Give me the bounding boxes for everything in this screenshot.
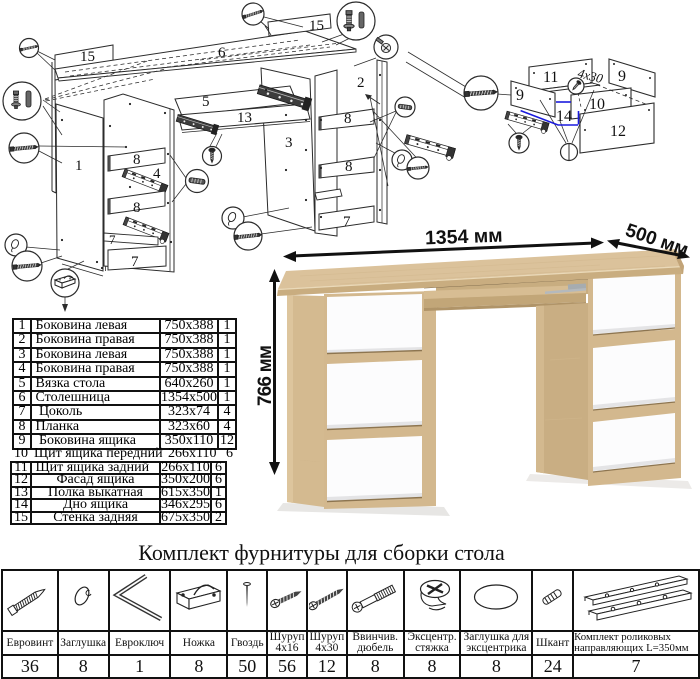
svg-text:7: 7 — [343, 214, 351, 230]
svg-text:5: 5 — [202, 94, 210, 110]
svg-text:4: 4 — [153, 166, 161, 182]
svg-text:15: 15 — [309, 18, 324, 34]
svg-text:2: 2 — [357, 75, 365, 91]
svg-text:7: 7 — [131, 254, 139, 270]
svg-text:8: 8 — [133, 152, 141, 168]
svg-text:13: 13 — [237, 110, 252, 126]
svg-text:7: 7 — [109, 232, 116, 247]
svg-text:3: 3 — [285, 135, 293, 151]
svg-text:9: 9 — [516, 87, 524, 104]
svg-text:10: 10 — [589, 96, 605, 113]
svg-text:8: 8 — [133, 200, 141, 216]
svg-text:9: 9 — [618, 68, 626, 85]
svg-text:8: 8 — [345, 159, 353, 175]
svg-text:1354 мм: 1354 мм — [425, 225, 503, 250]
svg-text:8: 8 — [344, 111, 352, 127]
svg-text:6: 6 — [218, 45, 226, 61]
svg-text:12: 12 — [610, 123, 626, 140]
svg-text:11: 11 — [543, 69, 558, 86]
svg-text:15: 15 — [80, 49, 95, 65]
svg-text:1: 1 — [75, 158, 83, 174]
svg-text:766 мм: 766 мм — [255, 346, 276, 406]
svg-text:14: 14 — [556, 108, 572, 125]
